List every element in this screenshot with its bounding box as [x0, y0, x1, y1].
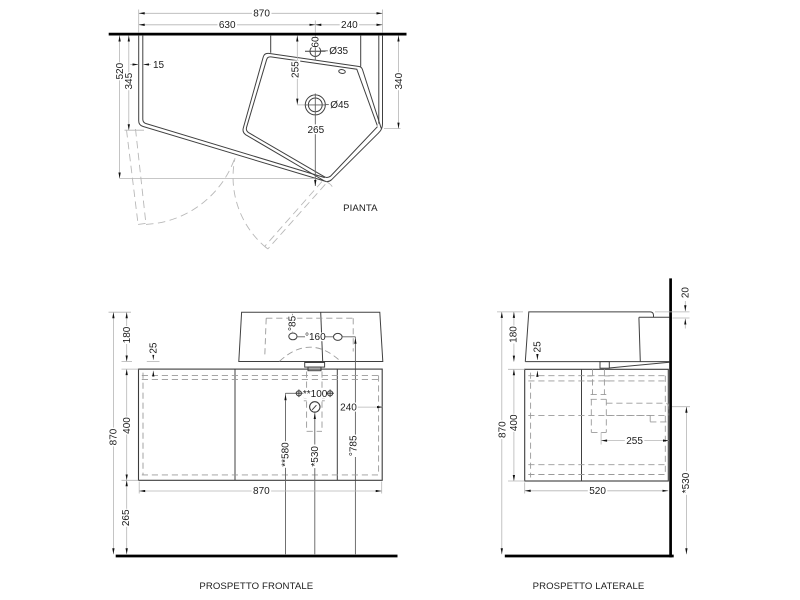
svg-text:520: 520 — [589, 486, 606, 497]
svg-text:265: 265 — [307, 125, 324, 136]
svg-text:20: 20 — [681, 287, 692, 299]
svg-text:630: 630 — [219, 20, 236, 31]
svg-text:240: 240 — [340, 403, 357, 414]
svg-text:°785: °785 — [349, 435, 360, 456]
svg-text:*530: *530 — [310, 446, 321, 467]
svg-text:870: 870 — [109, 428, 120, 445]
svg-text:240: 240 — [341, 20, 358, 31]
svg-text:180: 180 — [509, 326, 520, 343]
svg-text:PROSPETTO LATERALE: PROSPETTO LATERALE — [533, 581, 645, 592]
svg-text:340: 340 — [394, 72, 405, 89]
svg-text:PROSPETTO FRONTALE: PROSPETTO FRONTALE — [199, 581, 313, 592]
svg-text:870: 870 — [253, 486, 270, 497]
svg-text:60: 60 — [311, 36, 322, 48]
svg-text:*530: *530 — [681, 472, 692, 493]
svg-text:400: 400 — [509, 414, 520, 431]
svg-text:265: 265 — [121, 509, 132, 526]
svg-text:400: 400 — [122, 417, 133, 434]
svg-text:Ø35: Ø35 — [329, 46, 348, 57]
svg-text:870: 870 — [253, 9, 270, 20]
svg-text:°85: °85 — [288, 315, 299, 331]
svg-text:180: 180 — [122, 326, 133, 343]
svg-text:15: 15 — [153, 60, 165, 71]
svg-text:255: 255 — [291, 61, 302, 78]
svg-text:**100: **100 — [303, 389, 328, 400]
svg-text:Ø45: Ø45 — [330, 100, 349, 111]
svg-text:PIANTA: PIANTA — [343, 203, 378, 214]
svg-text:25: 25 — [533, 341, 544, 353]
svg-text:25: 25 — [148, 342, 159, 354]
svg-text:870: 870 — [498, 421, 509, 438]
svg-text:255: 255 — [626, 436, 643, 447]
svg-text:**580: **580 — [280, 442, 291, 467]
svg-text:345: 345 — [124, 72, 135, 89]
svg-text:°160: °160 — [305, 332, 326, 343]
